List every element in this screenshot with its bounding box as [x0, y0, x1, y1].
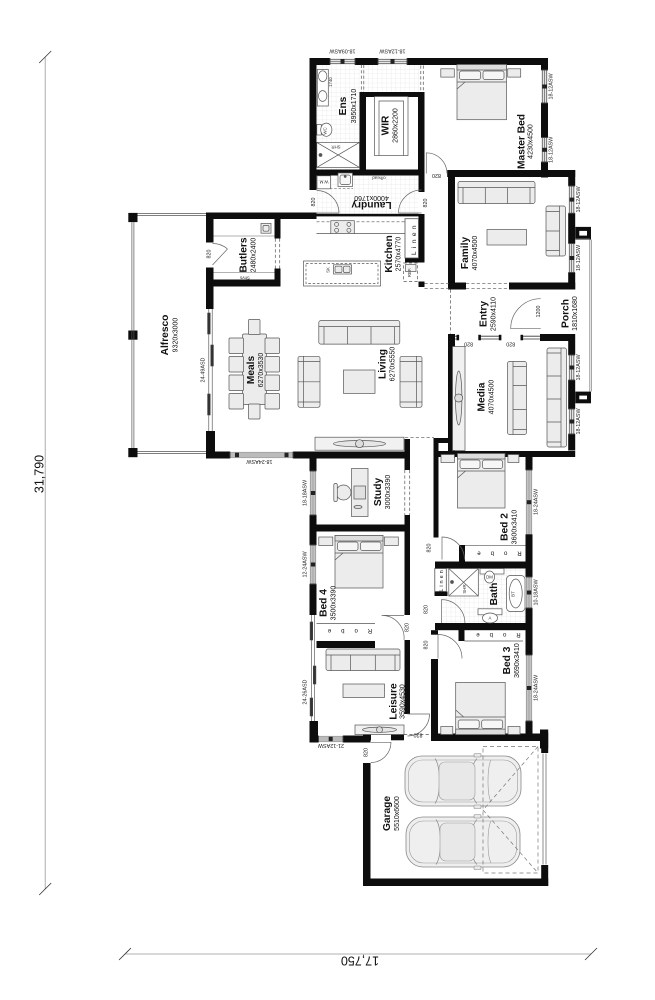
- svg-text:3500x3390: 3500x3390: [331, 586, 338, 621]
- svg-text:18-24ASW: 18-24ASW: [246, 458, 273, 464]
- svg-text:820: 820: [311, 198, 317, 207]
- svg-text:Bed 3: Bed 3: [502, 646, 513, 674]
- svg-text:Living: Living: [378, 349, 389, 379]
- svg-text:Kitchen: Kitchen: [384, 235, 395, 272]
- svg-text:820: 820: [506, 341, 515, 347]
- svg-text:820: 820: [427, 544, 433, 553]
- svg-text:3590x4530: 3590x4530: [399, 684, 406, 719]
- svg-text:Garage: Garage: [382, 796, 393, 831]
- svg-text:18-24ASW: 18-24ASW: [534, 674, 540, 701]
- svg-text:18-12ASW: 18-12ASW: [379, 48, 406, 54]
- svg-text:31,790: 31,790: [33, 455, 47, 493]
- svg-text:Bath: Bath: [489, 583, 500, 606]
- svg-text:18-12ASW: 18-12ASW: [576, 186, 582, 213]
- svg-text:18-18ASW: 18-18ASW: [302, 479, 308, 506]
- svg-text:820: 820: [432, 172, 441, 178]
- svg-text:5510x6600: 5510x6600: [394, 796, 401, 831]
- svg-text:24-26ASD: 24-26ASD: [302, 679, 308, 704]
- svg-text:WC: WC: [323, 127, 328, 134]
- svg-text:BT: BT: [511, 591, 516, 597]
- svg-text:Robe: Robe: [466, 631, 520, 637]
- svg-text:18-09ASW: 18-09ASW: [329, 48, 356, 54]
- svg-text:WIR: WIR: [381, 115, 392, 135]
- svg-text:18-12ASW: 18-12ASW: [549, 73, 555, 100]
- svg-text:12-24ASW: 12-24ASW: [302, 551, 308, 578]
- svg-text:o/head: o/head: [372, 176, 386, 181]
- svg-text:9320x3000: 9320x3000: [173, 318, 180, 353]
- svg-text:W.M.: W.M.: [319, 180, 329, 185]
- svg-text:2570x4770: 2570x4770: [396, 237, 403, 272]
- svg-text:4000x1760: 4000x1760: [354, 194, 389, 201]
- svg-text:Study: Study: [373, 478, 384, 507]
- svg-text:21-12ASW: 21-12ASW: [317, 742, 344, 748]
- svg-text:1810x1680: 1810x1680: [572, 296, 579, 331]
- svg-text:SHR: SHR: [462, 584, 467, 593]
- svg-text:Porch: Porch: [561, 299, 572, 328]
- svg-text:Bed 4: Bed 4: [319, 589, 330, 617]
- svg-text:Meals: Meals: [246, 356, 257, 385]
- svg-text:SK: SK: [326, 267, 331, 273]
- svg-text:820: 820: [424, 641, 430, 650]
- svg-text:820: 820: [207, 250, 213, 259]
- svg-text:10-18ASW: 10-18ASW: [534, 579, 540, 606]
- svg-text:Robe: Robe: [467, 550, 521, 556]
- svg-text:1740: 1740: [328, 77, 333, 87]
- svg-text:Media: Media: [477, 382, 488, 411]
- svg-text:18-12ASW: 18-12ASW: [549, 136, 555, 163]
- svg-text:17,750: 17,750: [341, 954, 379, 968]
- svg-text:6270x3530: 6270x3530: [258, 353, 265, 388]
- svg-text:18-12ASW: 18-12ASW: [576, 244, 582, 271]
- svg-text:820: 820: [364, 748, 370, 757]
- svg-text:24-49ASD: 24-49ASD: [201, 357, 207, 382]
- svg-text:6270x5550: 6270x5550: [390, 347, 397, 382]
- svg-text:Shvs: Shvs: [239, 276, 250, 281]
- svg-text:Leisure: Leisure: [389, 683, 400, 720]
- svg-text:Family: Family: [460, 237, 471, 270]
- svg-text:18-12ASW: 18-12ASW: [576, 408, 582, 435]
- svg-text:18-12ASW: 18-12ASW: [576, 354, 582, 381]
- svg-text:820: 820: [414, 731, 423, 737]
- svg-text:3000x3390: 3000x3390: [385, 475, 392, 510]
- svg-text:3950x1710: 3950x1710: [351, 89, 358, 124]
- svg-text:820: 820: [404, 623, 410, 632]
- svg-text:2860x2200: 2860x2200: [393, 108, 400, 143]
- svg-text:18-24ASW: 18-24ASW: [534, 488, 540, 515]
- svg-text:Linen: Linen: [439, 568, 445, 591]
- svg-text:Ens: Ens: [338, 96, 349, 115]
- svg-text:Alfresco: Alfresco: [160, 315, 171, 356]
- svg-text:3600x3410: 3600x3410: [512, 510, 519, 545]
- svg-text:Robe: Robe: [318, 627, 372, 633]
- svg-text:2480x2400: 2480x2400: [251, 238, 258, 273]
- svg-text:820: 820: [423, 199, 429, 208]
- svg-text:Master Bed: Master Bed: [517, 114, 528, 169]
- svg-text:Linen: Linen: [411, 222, 418, 255]
- svg-text:SHR: SHR: [331, 145, 340, 150]
- svg-text:DM: DM: [486, 575, 493, 580]
- svg-text:4070x4500: 4070x4500: [472, 236, 479, 271]
- svg-text:2590x4110: 2590x4110: [491, 297, 498, 331]
- svg-text:REF.: REF.: [407, 268, 412, 278]
- svg-text:4230x4500: 4230x4500: [528, 124, 535, 159]
- svg-text:3690x3410: 3690x3410: [514, 643, 521, 678]
- svg-text:Butlers: Butlers: [239, 237, 250, 272]
- svg-text:1200: 1200: [536, 306, 542, 318]
- svg-text:820: 820: [464, 341, 473, 347]
- svg-text:4070x4500: 4070x4500: [489, 380, 496, 415]
- svg-text:A: A: [489, 616, 492, 621]
- svg-text:Bed 2: Bed 2: [500, 513, 511, 541]
- svg-text:Entry: Entry: [479, 301, 490, 327]
- svg-text:820: 820: [424, 605, 430, 614]
